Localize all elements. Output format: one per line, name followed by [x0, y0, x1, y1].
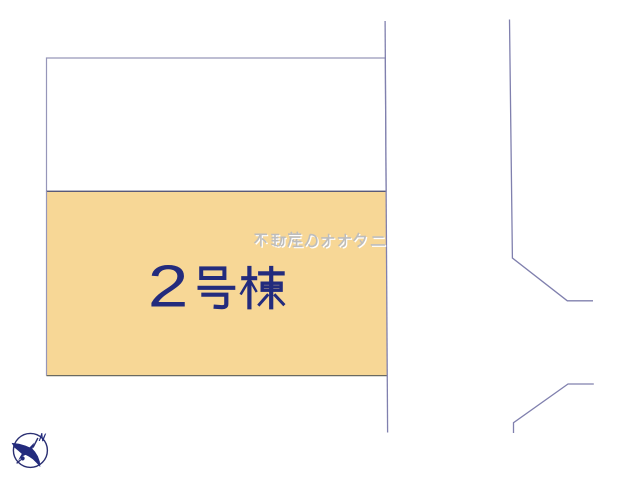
svg-text:2: 2	[148, 254, 189, 320]
